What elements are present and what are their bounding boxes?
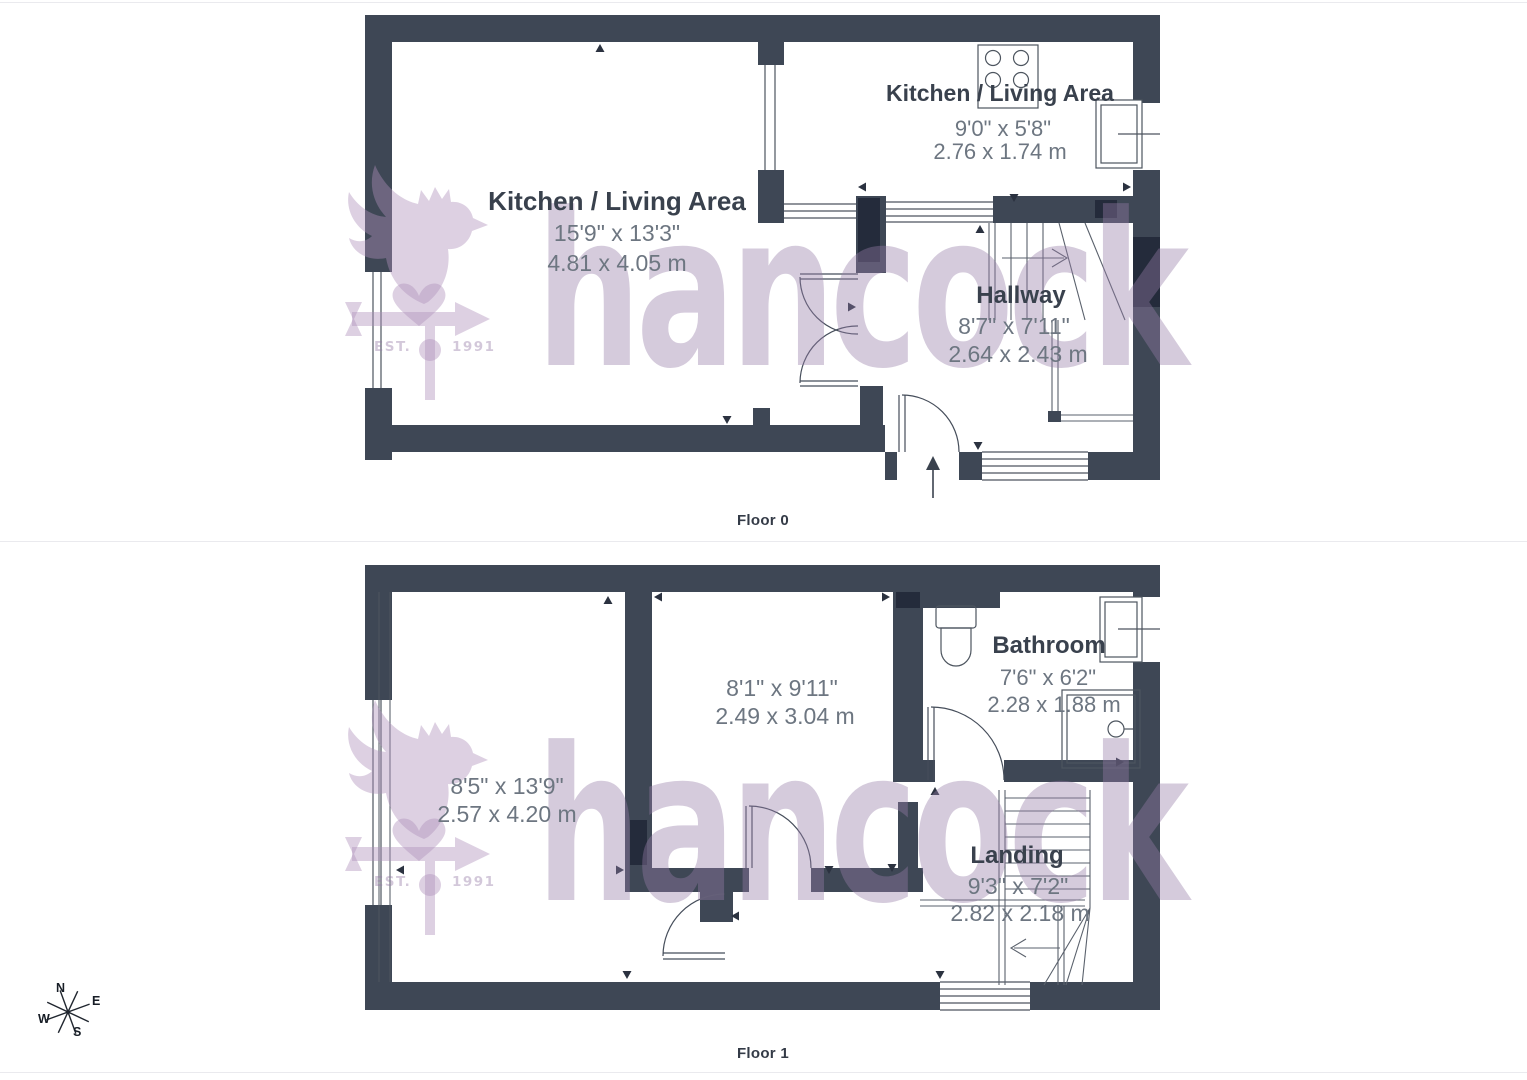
entrance-door [899, 395, 959, 452]
floorplan-graphics [0, 0, 1527, 1080]
window-bottom [940, 982, 1030, 1010]
interior-window-a [784, 204, 856, 218]
glazed-panel [765, 65, 775, 170]
room-dims-imperial: 8'7" x 7'11" [958, 313, 1070, 340]
entrance-arrow [926, 456, 940, 498]
room-name-bathroom: Bathroom [992, 632, 1105, 660]
floor1-label: Floor 1 [737, 1045, 789, 1062]
compass-east-label: E [92, 994, 100, 1008]
room-dims-metric: 2.49 x 3.04 m [715, 703, 854, 730]
room-dims-metric: 2.82 x 2.18 m [950, 900, 1089, 927]
compass-north-label: N [56, 981, 65, 995]
compass-south-label: S [73, 1025, 81, 1039]
room-name-landing: Landing [970, 842, 1063, 870]
interior-window-b [886, 202, 993, 222]
room-dims-imperial: 15'9" x 13'3" [554, 220, 680, 247]
room-dims-imperial: 9'3" x 7'2" [968, 873, 1069, 900]
room-dims-metric: 2.28 x 1.88 m [987, 692, 1120, 718]
compass-rose [46, 990, 89, 1033]
floorplan-page: { "floor0": { "label": "Floor 0", "rooms… [0, 0, 1527, 1080]
room-name-kitchen2: Kitchen / Living Area [886, 80, 1114, 107]
room-dims-metric: 2.76 x 1.74 m [933, 139, 1066, 165]
room-name-kitchen-living: Kitchen / Living Area [488, 186, 746, 217]
compass-west-label: W [38, 1012, 50, 1026]
window-left [365, 272, 392, 388]
room-dims-metric: 2.64 x 2.43 m [948, 341, 1087, 368]
middle-room-door [746, 806, 811, 868]
toilet-icon [936, 606, 976, 666]
room-dims-imperial: 8'1" x 9'11" [726, 675, 838, 702]
room-dims-imperial: 7'6" x 6'2" [1000, 665, 1096, 691]
room-dims-metric: 4.81 x 4.05 m [547, 250, 686, 277]
floor0-label: Floor 0 [737, 512, 789, 529]
room-name-hallway: Hallway [976, 282, 1065, 310]
double-door [800, 274, 858, 386]
stairs-up-arrow [1002, 249, 1067, 267]
room-dims-imperial: 8'5" x 13'9" [450, 773, 563, 800]
stairs-down-arrow [1011, 939, 1060, 957]
room-dims-metric: 2.57 x 4.20 m [437, 801, 576, 828]
